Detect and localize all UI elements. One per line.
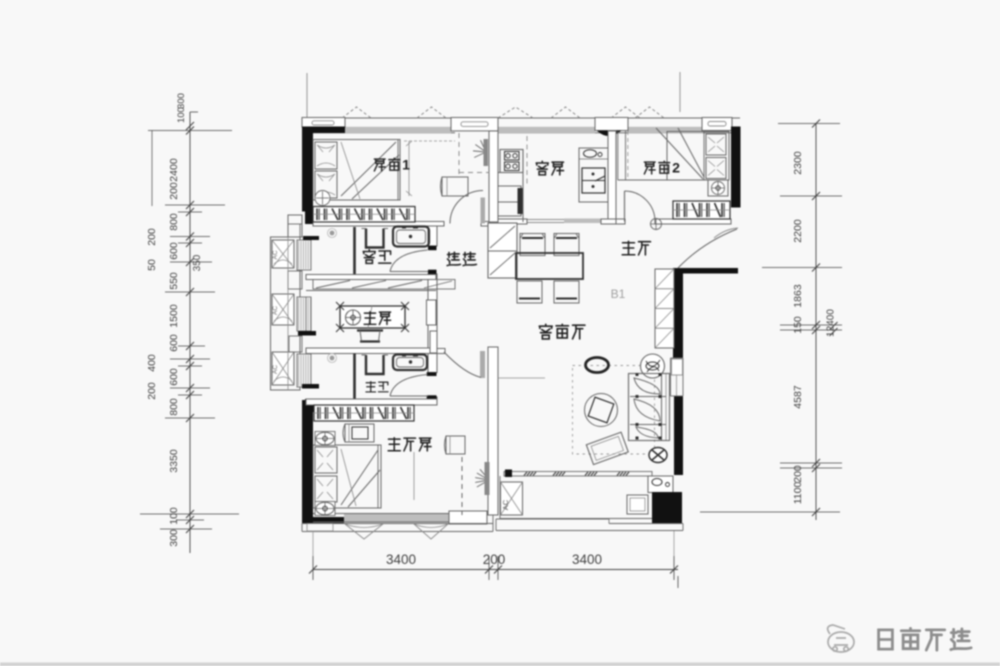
svg-text:400: 400 [146,354,158,372]
svg-text:1863: 1863 [792,284,804,308]
svg-text:4587: 4587 [792,385,804,409]
svg-text:350: 350 [192,254,203,271]
svg-text:200: 200 [146,228,158,246]
svg-text:2: 2 [672,161,680,177]
svg-text:1500: 1500 [168,304,180,328]
svg-text:AC: AC [272,306,279,315]
svg-text:B1: B1 [611,287,626,301]
svg-text:300: 300 [168,529,180,547]
svg-text:3400: 3400 [386,552,416,567]
svg-text:AC: AC [272,250,279,259]
svg-text:AC: AC [272,365,279,374]
svg-text:550: 550 [168,272,180,290]
svg-text:1: 1 [402,158,410,174]
svg-text:800: 800 [168,213,180,231]
svg-text:3350: 3350 [168,449,180,473]
svg-text:800: 800 [168,398,180,416]
svg-text:2400: 2400 [168,158,180,182]
svg-text:200: 200 [146,382,158,400]
svg-text:150: 150 [792,316,804,334]
svg-text:2200: 2200 [792,219,804,243]
svg-text:300: 300 [176,93,187,109]
svg-text:AC: AC [501,499,510,510]
svg-text:50: 50 [146,259,158,271]
svg-text:200: 200 [168,182,180,200]
svg-text:600: 600 [168,242,180,260]
svg-text:100: 100 [168,507,180,525]
svg-text:2300: 2300 [792,151,804,175]
svg-text:600: 600 [168,368,180,386]
svg-text:1100: 1100 [792,482,804,505]
svg-text:3400: 3400 [572,552,602,567]
svg-text:12400: 12400 [826,309,837,337]
svg-text:200: 200 [792,465,804,483]
svg-text:600: 600 [168,334,180,352]
svg-text:200: 200 [483,552,506,567]
